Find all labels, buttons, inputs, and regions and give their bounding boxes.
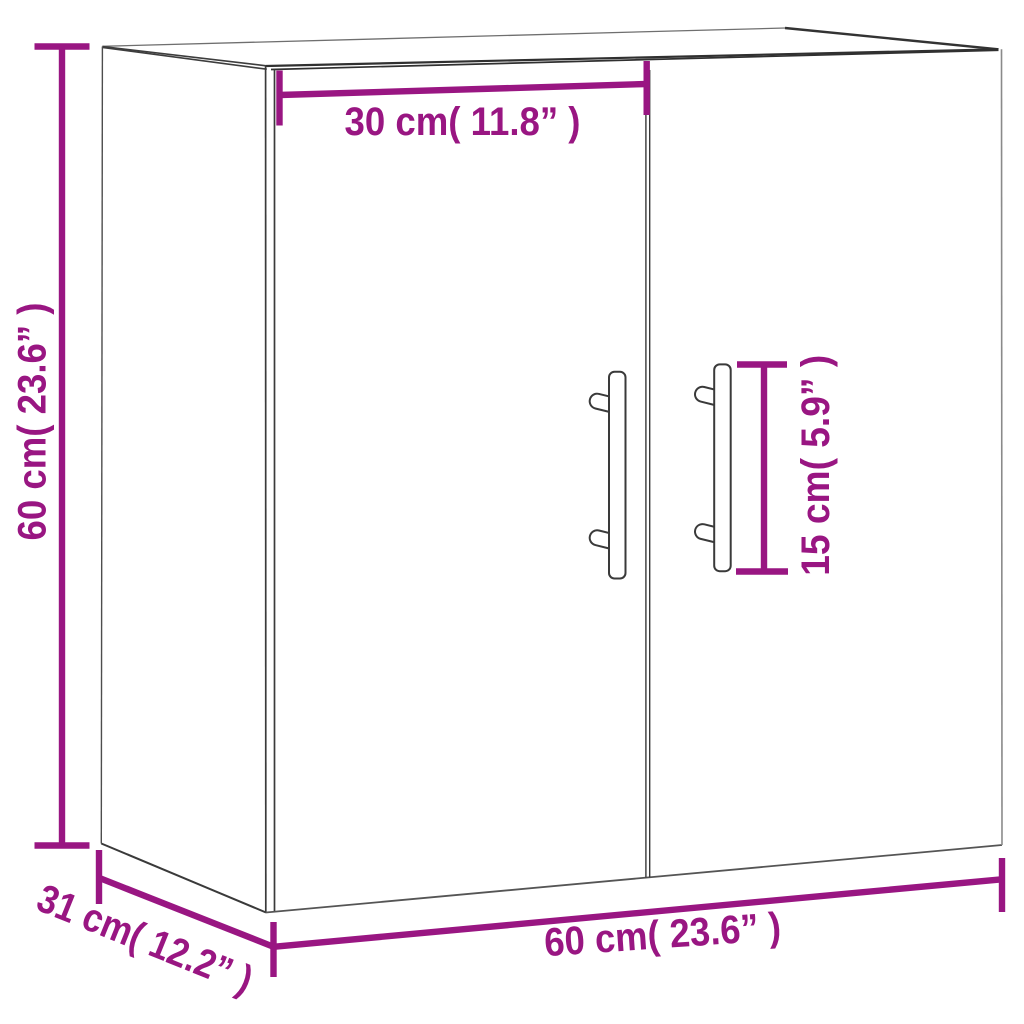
svg-text:30 cm( 11.8” ): 30 cm( 11.8” ) [345,100,581,144]
svg-text:15 cm( 5.9” ): 15 cm( 5.9” ) [794,355,838,576]
svg-text:60 cm( 23.6” ): 60 cm( 23.6” ) [11,303,55,541]
